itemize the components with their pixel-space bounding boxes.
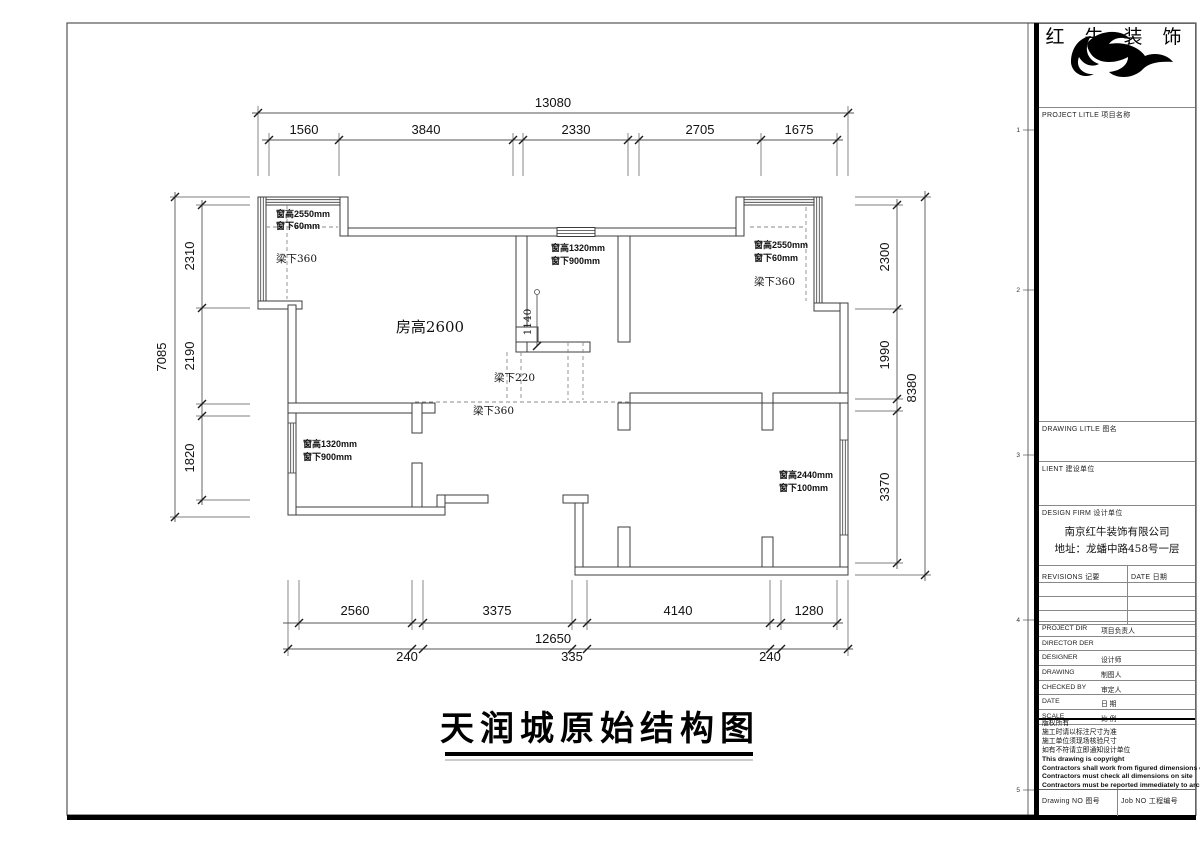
window-label-br: 窗高2440mm [779, 469, 833, 480]
dim-right-overall: 8380 [904, 374, 919, 403]
drawing-title-label: DRAWING LITLE 图名 [1039, 422, 1195, 434]
project-title-section: PROJECT LITLE 项目名称 [1039, 108, 1195, 422]
drawing-title-text: 天润城原始结构图 [440, 710, 760, 748]
row-label-zh: 日 期 [1101, 698, 1116, 708]
dim-bottom-240a: 240 [396, 649, 418, 664]
dim-chain-left: 7085 2310 2190 1820 [154, 192, 250, 522]
row-label-en: DIRECTOR DER [1042, 640, 1094, 647]
beam-label-mid2: 梁下360 [473, 404, 514, 417]
job-no-label: Job NO 工程编号 [1118, 796, 1178, 805]
row-label-en: DRAWING [1042, 669, 1075, 676]
room-height-label: 房高2600 [396, 318, 464, 336]
window-label-br2: 窗下100mm [779, 482, 828, 493]
drawing-no-cell: Drawing NO 图号 [1039, 790, 1117, 816]
dim-top-4: 2705 [686, 122, 715, 137]
ruler-mark: 2 [1016, 287, 1020, 294]
window-label-tm2: 窗下900mm [551, 255, 600, 266]
frame-ruler: 1 2 3 4 5 [1016, 127, 1034, 794]
row-checked-by: CHECKED BY 审定人 [1039, 681, 1195, 696]
window-label-bl: 窗高1320mm [303, 438, 357, 449]
revision-row [1039, 597, 1195, 611]
row-date: DATE 日 期 [1039, 695, 1195, 710]
dim-bottom-overall: 12650 [535, 631, 571, 646]
dim-bottom-1: 2560 [341, 603, 370, 618]
copyright-notes: 版权所有 施工时请以标注尺寸为准 施工单位须现场核验尺寸 如有不符请立即通知设计… [1039, 718, 1195, 790]
window-label-tl2: 窗下60mm [276, 220, 320, 231]
dim-chain-right: 8380 2300 1990 3370 [855, 191, 931, 581]
window-label-tr: 窗高2550mm [754, 239, 808, 250]
dim-right-1: 2300 [877, 243, 892, 272]
dim-top-2: 3840 [412, 122, 441, 137]
dim-left-overall: 7085 [154, 343, 169, 372]
revisions-label: REVISIONS 记要 [1039, 572, 1100, 581]
revision-row [1039, 583, 1195, 597]
company-name: 南京红牛装饰有限公司 [1039, 524, 1195, 539]
row-project-dir: PROJECT DIR 项目负责人 [1039, 622, 1195, 637]
window-label-tr2: 窗下60mm [754, 252, 798, 263]
row-label-en: DESIGNER [1042, 654, 1078, 661]
dim-chain-bottom: 2560 3375 4140 1280 12650 240 335 240 [283, 580, 853, 664]
dim-left-1: 2310 [182, 242, 197, 271]
drawing-sheet: 1 2 3 4 5 [0, 0, 1200, 844]
dim-right-2: 1990 [877, 341, 892, 370]
sheet-frame [67, 23, 1196, 815]
note-line: Contractors shall work from figured dime… [1039, 765, 1195, 774]
dim-bottom-4: 1280 [795, 603, 824, 618]
dim-chain-top: 13080 1560 3840 2330 2705 1675 [252, 95, 854, 176]
logo-section: 红 牛 装 饰 [1039, 24, 1195, 108]
ruler-mark: 5 [1016, 787, 1020, 794]
floorplan-canvas: 1 2 3 4 5 [0, 0, 1200, 844]
dim-left-2: 2190 [182, 342, 197, 371]
date-column-label: DATE 日期 [1128, 572, 1167, 581]
dim-left-3: 1820 [182, 444, 197, 473]
row-label-zh: 设计师 [1101, 654, 1121, 664]
drawing-title: 天润城原始结构图 [440, 710, 760, 760]
client-section: LIENT 建设单位 [1039, 462, 1195, 506]
window-label-bl2: 窗下900mm [303, 451, 352, 462]
dim-bottom-240b: 240 [759, 649, 781, 664]
drawing-number-section: Drawing NO 图号 Job NO 工程编号 [1039, 790, 1195, 816]
revisions-date-column: DATE 日期 [1127, 566, 1196, 582]
client-label: LIENT 建设单位 [1039, 462, 1195, 474]
dim-1140-label: 1140 [522, 309, 534, 336]
note-line: This drawing is copyright [1039, 756, 1195, 765]
drawing-no-label: Drawing NO 图号 [1039, 796, 1100, 805]
project-title-label: PROJECT LITLE 项目名称 [1039, 108, 1195, 120]
row-label-zh: 制图人 [1101, 669, 1121, 679]
beam-label-tl: 梁下360 [276, 252, 317, 265]
note-line: Contractors must check all dimensions on… [1039, 773, 1195, 782]
row-label-en: DATE [1042, 698, 1060, 705]
note-line: 施工时请以标注尺寸为准 [1039, 729, 1195, 738]
design-firm-section: DESIGN FIRM 设计单位 南京红牛装饰有限公司 地址：龙蟠中路458号一… [1039, 506, 1195, 566]
row-designer: DESIGNER 设计师 [1039, 651, 1195, 666]
job-no-cell: Job NO 工程编号 [1117, 790, 1196, 816]
revisions-section: REVISIONS 记要 DATE 日期 [1039, 566, 1195, 622]
row-label-zh: 审定人 [1101, 684, 1121, 694]
row-label-en: CHECKED BY [1042, 684, 1086, 691]
note-line: 如有不符请立即通知设计单位 [1039, 747, 1195, 756]
revisions-header: REVISIONS 记要 DATE 日期 [1039, 566, 1195, 583]
dim-top-5: 1675 [785, 122, 814, 137]
dim-bottom-2: 3375 [483, 603, 512, 618]
personnel-rows: PROJECT DIR 项目负责人 DIRECTOR DER DESIGNER … [1039, 622, 1195, 718]
dim-top-3: 2330 [562, 122, 591, 137]
window-label-tl: 窗高2550mm [276, 208, 330, 219]
note-line: 施工单位须现场核验尺寸 [1039, 738, 1195, 747]
row-director: DIRECTOR DER [1039, 637, 1195, 652]
row-label-en: PROJECT DIR [1042, 625, 1087, 632]
bull-logo-icon [1039, 24, 1194, 80]
note-line: 版权所有 [1039, 720, 1195, 729]
titleblock: 红 牛 装 饰 PROJECT LITLE 项目名称 DRAWING LITLE… [1039, 23, 1196, 815]
dim-right-3: 3370 [877, 473, 892, 502]
beam-label-tr: 梁下360 [754, 275, 795, 288]
row-drawing: DRAWING 制图人 [1039, 666, 1195, 681]
dim-bottom-3: 4140 [664, 603, 693, 618]
ruler-mark: 3 [1016, 452, 1020, 459]
row-label-zh: 项目负责人 [1101, 625, 1135, 635]
dim-top-overall: 13080 [535, 95, 571, 110]
window-label-tm: 窗高1320mm [551, 242, 605, 253]
drawing-title-section: DRAWING LITLE 图名 [1039, 422, 1195, 462]
sheet-bottom-border [67, 815, 1196, 820]
company-address: 地址：龙蟠中路458号一层 [1039, 541, 1195, 556]
beam-label-mid: 梁下220 [494, 371, 535, 384]
design-firm-label: DESIGN FIRM 设计单位 [1039, 506, 1195, 518]
dim-bottom-335: 335 [561, 649, 583, 664]
ruler-mark: 4 [1016, 617, 1020, 624]
dim-top-1: 1560 [290, 122, 319, 137]
ruler-mark: 1 [1016, 127, 1020, 134]
